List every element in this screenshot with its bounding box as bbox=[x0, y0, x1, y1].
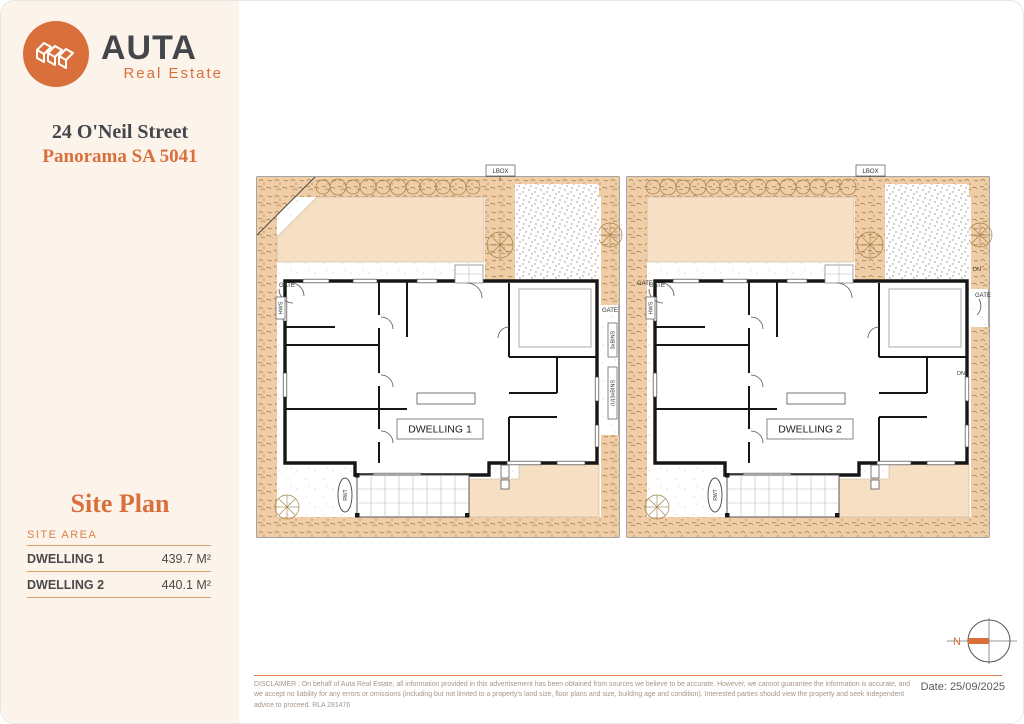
dwelling-name-label: DWELLING 2 bbox=[778, 424, 842, 436]
tree-icon bbox=[857, 232, 883, 258]
disclaimer-text: DISCLAIMER : On behalf of Auta Real Esta… bbox=[254, 680, 914, 711]
compass: N bbox=[939, 613, 1019, 669]
svg-text:DN: DN bbox=[973, 267, 981, 273]
tree-icon bbox=[598, 223, 622, 247]
svg-text:(U)3xBINS: (U)3xBINS bbox=[611, 380, 617, 407]
site-dwelling-1: RWTLBOXGATEHWSDWELLING 1GATE3xBINS(U)3xB… bbox=[257, 165, 622, 537]
house-floorplan bbox=[653, 265, 969, 477]
front-lawn bbox=[277, 197, 484, 262]
house-floorplan bbox=[283, 265, 599, 477]
north-arrow-icon bbox=[968, 638, 989, 644]
svg-text:GATE: GATE bbox=[975, 293, 991, 299]
svg-text:GATE: GATE bbox=[637, 281, 653, 287]
svg-text:GATE: GATE bbox=[602, 308, 618, 314]
table-row: DWELLING 1 439.7 M² bbox=[27, 546, 211, 572]
driveway bbox=[515, 184, 599, 283]
dwelling2-area: 440.1 M² bbox=[162, 578, 211, 592]
svg-text:GATE: GATE bbox=[279, 283, 295, 289]
svg-text:HWS: HWS bbox=[649, 301, 655, 314]
site-plan-drawing: RWTLBOXGATEHWSDWELLING 1GATE3xBINS(U)3xB… bbox=[251, 159, 1011, 555]
site-area-table: SITE AREA DWELLING 1 439.7 M² DWELLING 2… bbox=[27, 529, 211, 598]
dwelling2-label: DWELLING 2 bbox=[27, 578, 104, 592]
table-row: DWELLING 2 440.1 M² bbox=[27, 572, 211, 598]
svg-text:HWS: HWS bbox=[279, 301, 285, 314]
footer-divider bbox=[254, 675, 1002, 676]
address-street: 24 O'Neil Street bbox=[1, 121, 239, 144]
logo: AUTA Real Estate bbox=[23, 21, 223, 91]
dwelling-name-label: DWELLING 1 bbox=[408, 424, 472, 436]
site-plan-page: AUTA Real Estate 24 O'Neil Street Panora… bbox=[0, 0, 1024, 724]
svg-text:RWT: RWT bbox=[343, 489, 349, 500]
sidebar: AUTA Real Estate 24 O'Neil Street Panora… bbox=[1, 1, 239, 724]
svg-text:DN: DN bbox=[957, 371, 965, 377]
north-label: N bbox=[953, 636, 961, 648]
main-area: RWTLBOXGATEHWSDWELLING 1GATE3xBINS(U)3xB… bbox=[239, 1, 1024, 724]
alfresco bbox=[355, 473, 470, 518]
dwelling1-area: 439.7 M² bbox=[162, 552, 211, 566]
date-label: Date: 25/09/2025 bbox=[919, 681, 1005, 693]
svg-text:RWT: RWT bbox=[713, 489, 719, 500]
dwelling1-label: DWELLING 1 bbox=[27, 552, 104, 566]
svg-text:LBOX: LBOX bbox=[492, 169, 508, 175]
svg-text:LBOX: LBOX bbox=[862, 169, 878, 175]
brand-tagline: Real Estate bbox=[101, 65, 223, 82]
site-dwelling-2: RWTLBOXGATEHWSDWELLING 2GATEDNGATEDN bbox=[627, 165, 992, 537]
svg-text:3xBINS: 3xBINS bbox=[611, 330, 617, 349]
page-title: Site Plan bbox=[1, 489, 239, 519]
tree-icon bbox=[968, 223, 992, 247]
driveway bbox=[885, 184, 969, 283]
front-lawn bbox=[647, 197, 854, 262]
property-address: 24 O'Neil Street Panorama SA 5041 bbox=[1, 121, 239, 168]
tree-icon bbox=[645, 495, 669, 519]
address-suburb: Panorama SA 5041 bbox=[1, 146, 239, 168]
auta-logo-icon bbox=[23, 21, 89, 87]
tree-icon bbox=[275, 495, 299, 519]
site-area-heading: SITE AREA bbox=[27, 529, 211, 546]
brand-name: AUTA bbox=[101, 29, 197, 68]
alfresco bbox=[725, 473, 840, 518]
tree-icon bbox=[487, 232, 513, 258]
